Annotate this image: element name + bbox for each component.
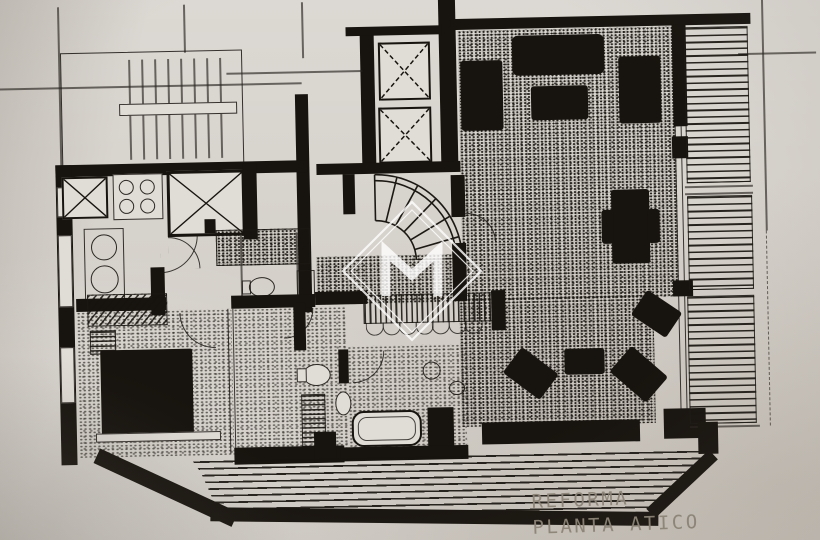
- cooktop: [112, 173, 163, 220]
- shaft-x-icon: [64, 178, 107, 217]
- closet-hatched: [87, 293, 168, 327]
- wall-elevator-top: [345, 25, 441, 36]
- terrace-divider-line: [685, 185, 753, 188]
- sofa-top: [512, 34, 605, 76]
- elevator-x-icon: [380, 109, 430, 162]
- terrace-east-3: [687, 295, 757, 424]
- bidet-tank: [297, 368, 307, 382]
- wall-kitchen-right: [242, 163, 258, 239]
- elevator-x-icon: [380, 44, 429, 99]
- section-line-right: [738, 51, 816, 54]
- wall-line-top-center: [301, 2, 304, 58]
- plan-caption: REFORMA PLANTA ATICO: [531, 483, 700, 540]
- sofa-left: [460, 60, 503, 131]
- dining-table: [611, 189, 651, 264]
- property-line-right-dashed: [766, 231, 772, 426]
- elevator-shaft-2: [378, 107, 432, 164]
- wall-living-bottom-1: [482, 419, 640, 444]
- duct-shaft: [62, 176, 109, 219]
- toilet-cistern: [242, 280, 251, 294]
- bathtub: [352, 410, 423, 447]
- dining-table-wing: [601, 210, 614, 244]
- diamond-m-logo-icon: [337, 196, 487, 346]
- terrace-east-1: [684, 26, 751, 183]
- window-left-2: [58, 235, 74, 307]
- terrace-east-2: [687, 195, 754, 290]
- property-line-right: [761, 0, 767, 231]
- bed: [100, 349, 194, 435]
- side-table: [564, 348, 605, 375]
- sofa-right: [618, 56, 661, 124]
- bedroom-mid-floor: [233, 306, 348, 450]
- wall-elevator-left: [360, 31, 377, 167]
- dining-table-wing: [647, 209, 660, 243]
- wall-line-lobby: [226, 70, 362, 74]
- elevator-shaft-1: [378, 42, 431, 101]
- wall-bath-left: [293, 302, 306, 350]
- caption-line-2: PLANTA ATICO: [532, 509, 700, 540]
- stair-axis-line: [183, 5, 186, 53]
- coffee-table: [531, 85, 589, 120]
- scanned-floor-plan-photo: REFORMA PLANTA ATICO: [0, 0, 820, 540]
- stair-landing: [119, 102, 237, 116]
- window-left-3: [60, 347, 75, 403]
- bathtub-inner: [358, 416, 416, 441]
- wall-wc-top: [204, 219, 215, 233]
- wall-bath-mid: [338, 349, 349, 383]
- wall-corridor-right: [491, 290, 506, 330]
